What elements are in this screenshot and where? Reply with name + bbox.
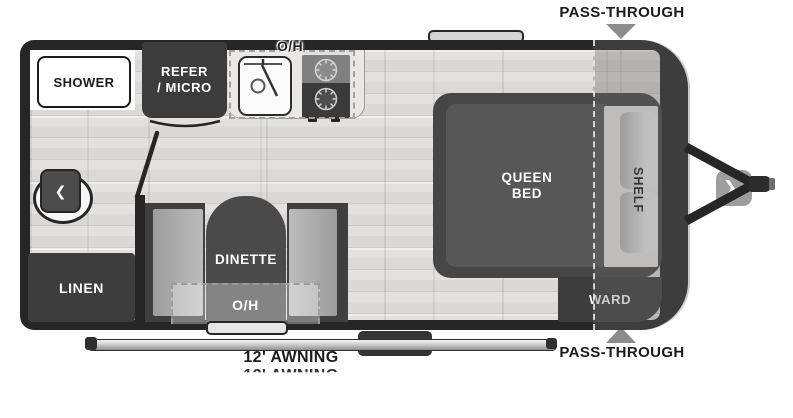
overhead-label-kitchen: O/H (265, 38, 315, 54)
hitch-coupler (749, 176, 771, 192)
overhead-cabinet-kitchen (229, 50, 355, 119)
linen-cabinet: LINEN (28, 253, 135, 322)
toilet-tank-chevron-icon: ❮ (40, 169, 81, 213)
pass-through-storage-overlay (593, 40, 690, 330)
awning-end-cap-right (546, 338, 557, 349)
entry-door (206, 321, 288, 335)
pass-through-top-label: PASS-THROUGH (540, 4, 704, 21)
awning-end-cap-left (85, 337, 97, 350)
awning-label: 12' AWNING (215, 349, 367, 367)
hitch-coupler-tip (769, 178, 775, 190)
pass-through-bottom-label: PASS-THROUGH (540, 344, 704, 361)
front-chevron-icon: ❯ (716, 170, 752, 206)
shower: SHOWER (37, 56, 131, 108)
refrigerator-microwave-cabinet: REFER / MICRO (142, 42, 227, 118)
overhead-cabinet-dinette: O/H (171, 283, 320, 324)
bathroom-wall (135, 195, 145, 322)
pass-through-top-arrow-icon (606, 24, 636, 39)
queen-bed: QUEEN BED (446, 104, 608, 267)
awning-label-clipped-echo: 12' AWNING (215, 367, 367, 385)
floorplan: PASS-THROUGH PASS-THROUGH 12' AWNING 12'… (0, 0, 793, 418)
